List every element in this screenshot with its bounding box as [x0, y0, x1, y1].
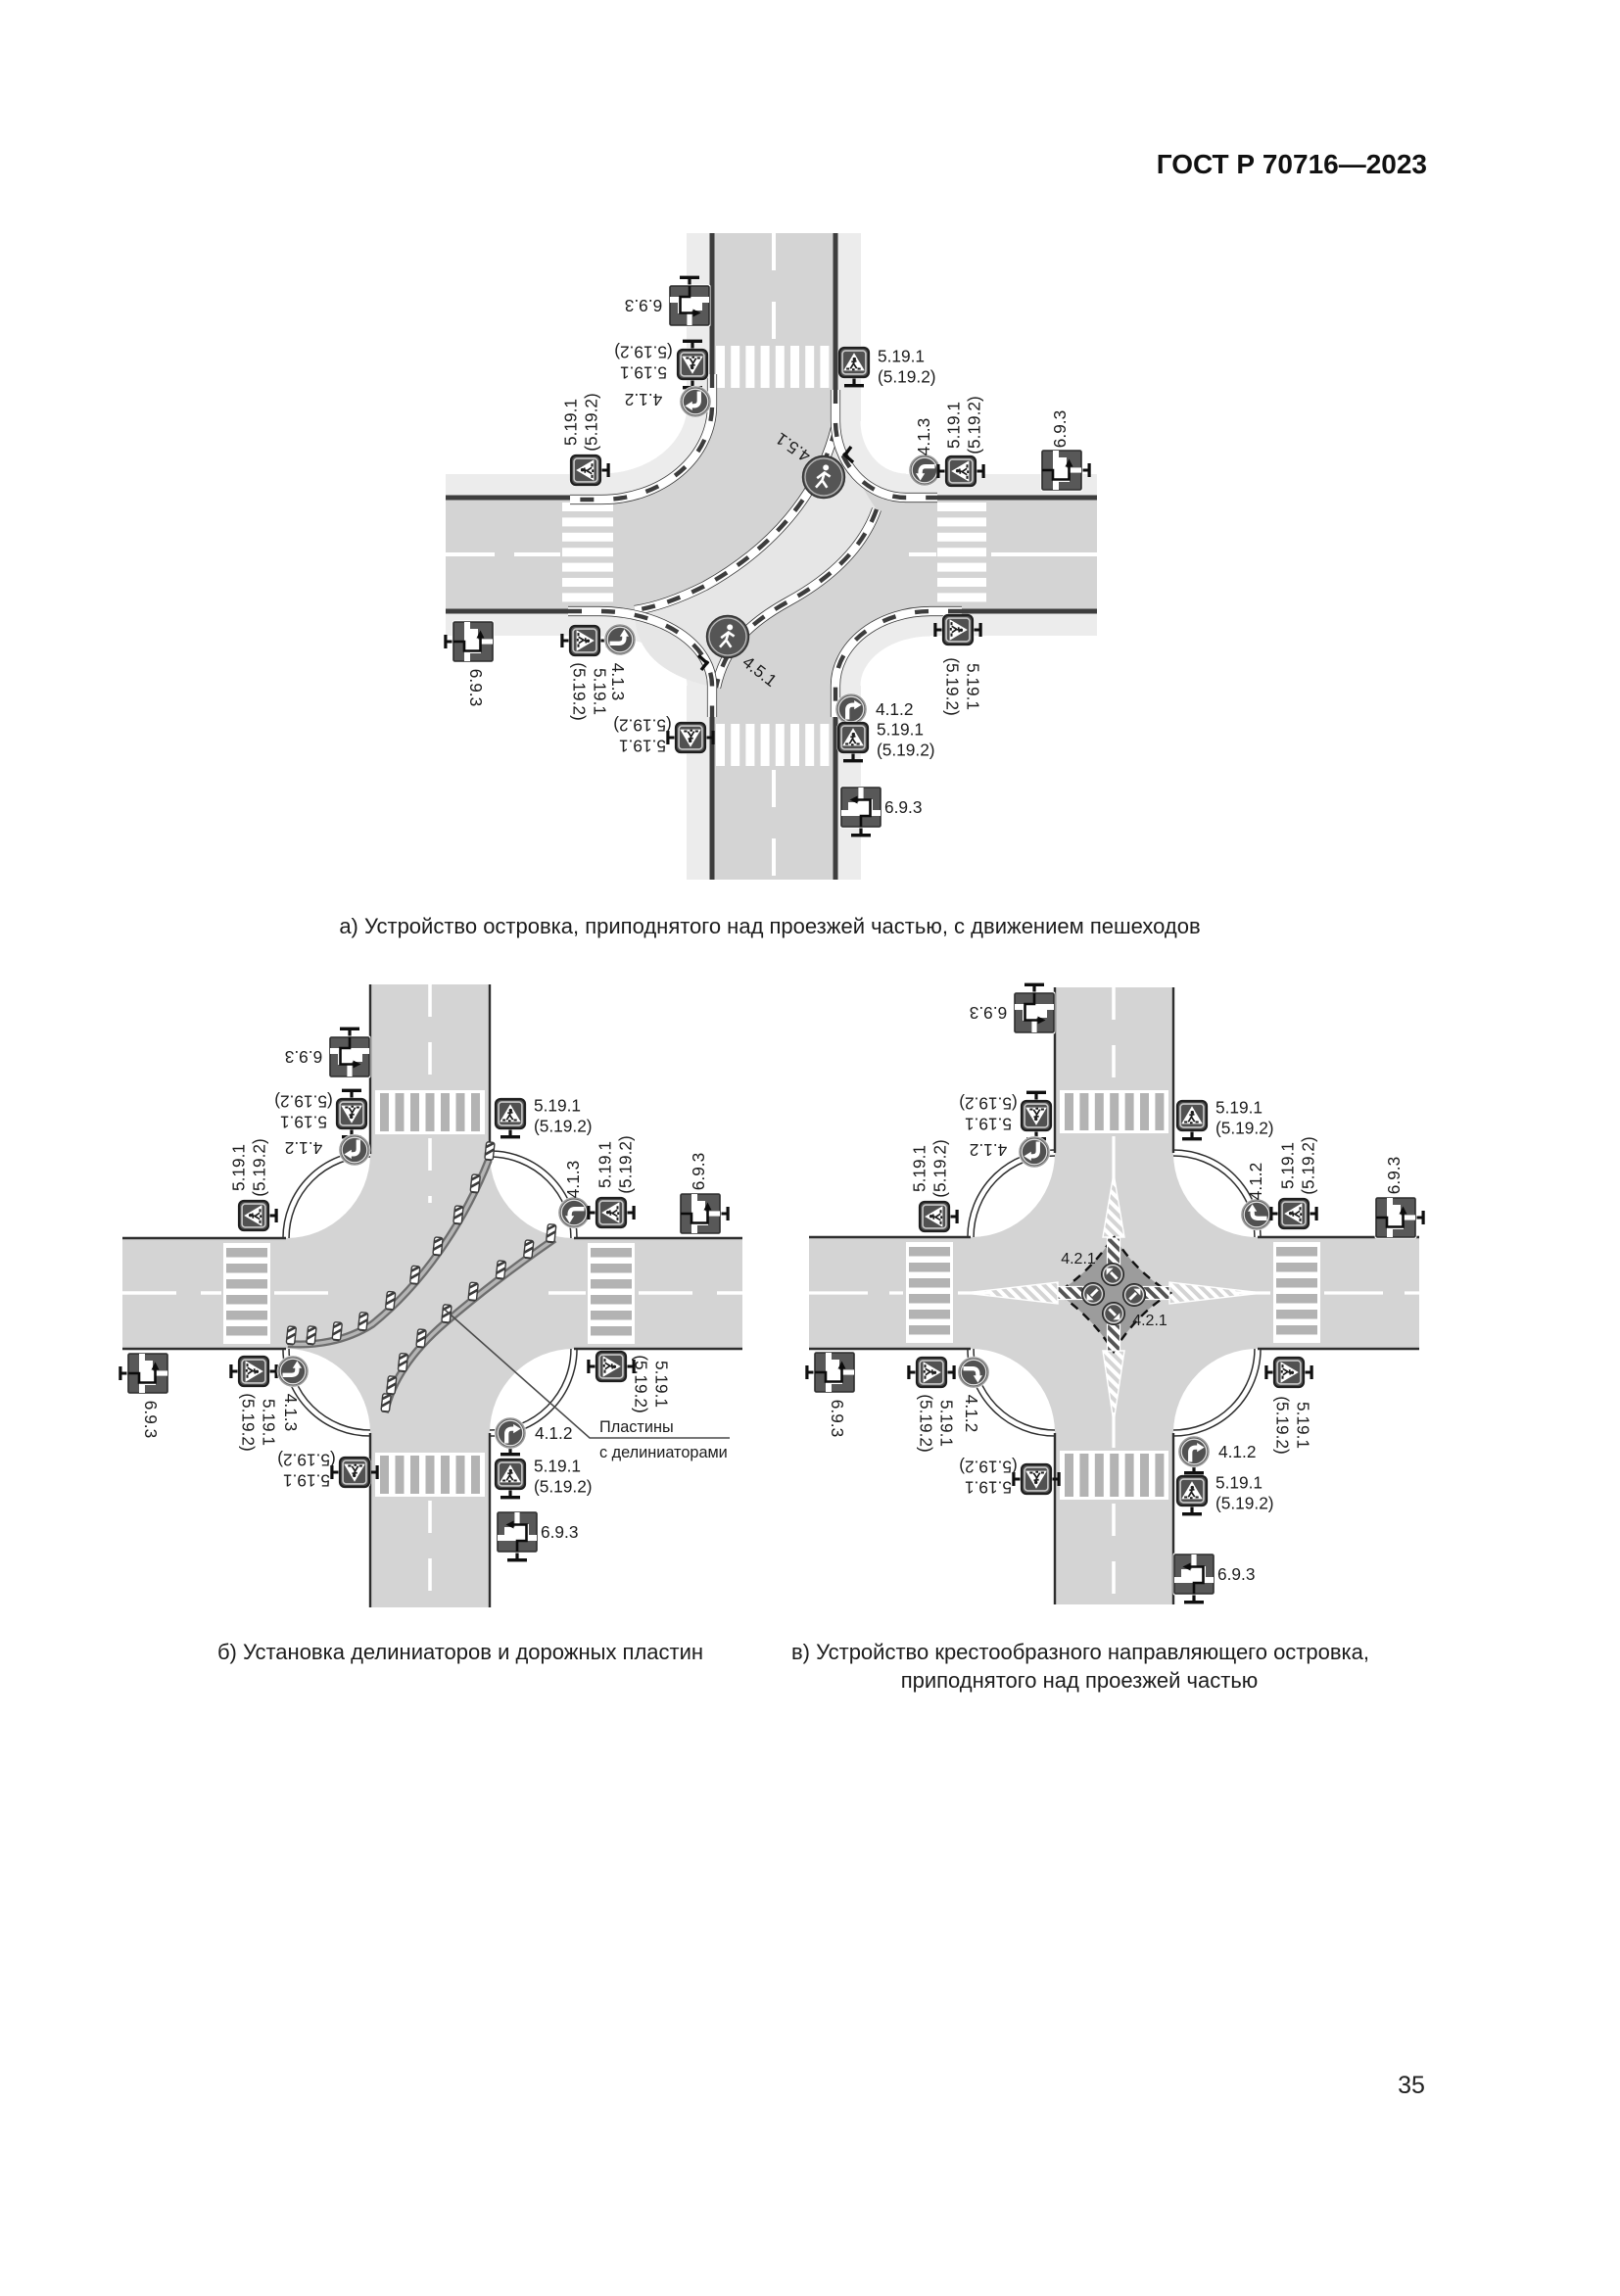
svg-text:приподнятого над проезжей част: приподнятого над проезжей частью [901, 1668, 1259, 1693]
svg-text:35: 35 [1398, 2072, 1425, 2099]
svg-text:4.1.3: 4.1.3 [281, 1394, 301, 1431]
svg-text:5.19.1(5.19.2): 5.19.1(5.19.2) [959, 1094, 1018, 1134]
svg-text:5.19.1(5.19.2): 5.19.1(5.19.2) [614, 343, 673, 383]
svg-text:5.19.1(5.19.2): 5.19.1(5.19.2) [277, 1451, 336, 1491]
svg-text:5.19.1(5.19.2): 5.19.1(5.19.2) [1215, 1098, 1274, 1138]
svg-text:4.1.2: 4.1.2 [962, 1395, 981, 1432]
svg-text:6.9.3: 6.9.3 [141, 1401, 161, 1438]
svg-text:6.9.3: 6.9.3 [1050, 410, 1070, 448]
svg-text:в) Устройство крестообразного: в) Устройство крестообразного направляющ… [791, 1640, 1369, 1664]
svg-text:5.19.1(5.19.2): 5.19.1(5.19.2) [917, 1394, 957, 1453]
svg-text:5.19.1(5.19.2): 5.19.1(5.19.2) [910, 1139, 950, 1198]
svg-text:6.9.3: 6.9.3 [625, 296, 662, 315]
svg-text:б) Установка делиниаторов и до: б) Установка делиниаторов и дорожных пла… [217, 1640, 703, 1664]
svg-text:а) Устройство островка, припод: а) Устройство островка, приподнятого над… [339, 914, 1200, 938]
svg-text:6.9.3: 6.9.3 [466, 669, 486, 706]
svg-text:5.19.1(5.19.2): 5.19.1(5.19.2) [229, 1138, 269, 1197]
svg-text:6.9.3: 6.9.3 [1384, 1157, 1404, 1194]
svg-text:5.19.1(5.19.2): 5.19.1(5.19.2) [561, 393, 601, 452]
svg-text:6.9.3: 6.9.3 [828, 1400, 847, 1437]
svg-text:4.1.3: 4.1.3 [563, 1161, 583, 1198]
svg-text:6.9.3: 6.9.3 [884, 797, 922, 817]
svg-text:4.2.1: 4.2.1 [1132, 1313, 1167, 1329]
svg-text:4.1.2: 4.1.2 [285, 1138, 322, 1158]
svg-text:4.1.2: 4.1.2 [1246, 1163, 1265, 1200]
svg-text:6.9.3: 6.9.3 [285, 1047, 322, 1067]
svg-text:4.1.2: 4.1.2 [535, 1423, 572, 1443]
svg-text:5.19.1(5.19.2): 5.19.1(5.19.2) [943, 657, 983, 716]
svg-text:5.19.1(5.19.2): 5.19.1(5.19.2) [1278, 1136, 1318, 1195]
svg-text:4.2.1: 4.2.1 [1061, 1251, 1096, 1268]
svg-text:4.1.2: 4.1.2 [970, 1140, 1007, 1160]
svg-text:5.19.1(5.19.2): 5.19.1(5.19.2) [632, 1355, 672, 1413]
svg-text:4.1.3: 4.1.3 [608, 663, 628, 700]
svg-text:5.19.1(5.19.2): 5.19.1(5.19.2) [878, 347, 936, 387]
svg-text:6.9.3: 6.9.3 [1217, 1564, 1255, 1584]
svg-text:4.1.2: 4.1.2 [876, 699, 913, 719]
svg-text:5.19.1(5.19.2): 5.19.1(5.19.2) [944, 396, 984, 454]
svg-text:Пластины: Пластины [599, 1418, 674, 1436]
svg-text:5.19.1(5.19.2): 5.19.1(5.19.2) [1273, 1396, 1313, 1455]
svg-text:4.1.3: 4.1.3 [914, 418, 933, 455]
svg-text:5.19.1(5.19.2): 5.19.1(5.19.2) [534, 1457, 593, 1497]
svg-text:4.1.2: 4.1.2 [625, 390, 662, 409]
svg-text:5.19.1(5.19.2): 5.19.1(5.19.2) [1215, 1473, 1274, 1513]
svg-text:5.19.1(5.19.2): 5.19.1(5.19.2) [570, 662, 610, 721]
svg-text:с делиниаторами: с делиниаторами [599, 1444, 728, 1461]
svg-text:5.19.1(5.19.2): 5.19.1(5.19.2) [239, 1393, 279, 1452]
svg-text:6.9.3: 6.9.3 [970, 1003, 1007, 1023]
svg-text:6.9.3: 6.9.3 [689, 1153, 708, 1190]
svg-text:5.19.1(5.19.2): 5.19.1(5.19.2) [613, 716, 672, 756]
svg-text:5.19.1(5.19.2): 5.19.1(5.19.2) [959, 1458, 1018, 1498]
svg-text:5.19.1(5.19.2): 5.19.1(5.19.2) [596, 1135, 636, 1194]
svg-text:4.1.2: 4.1.2 [1218, 1442, 1256, 1461]
svg-text:6.9.3: 6.9.3 [541, 1522, 578, 1542]
svg-text:5.19.1(5.19.2): 5.19.1(5.19.2) [877, 720, 935, 760]
svg-text:5.19.1(5.19.2): 5.19.1(5.19.2) [534, 1096, 593, 1136]
svg-text:ГОСТ Р 70716—2023: ГОСТ Р 70716—2023 [1157, 149, 1427, 179]
svg-text:5.19.1(5.19.2): 5.19.1(5.19.2) [274, 1092, 333, 1132]
